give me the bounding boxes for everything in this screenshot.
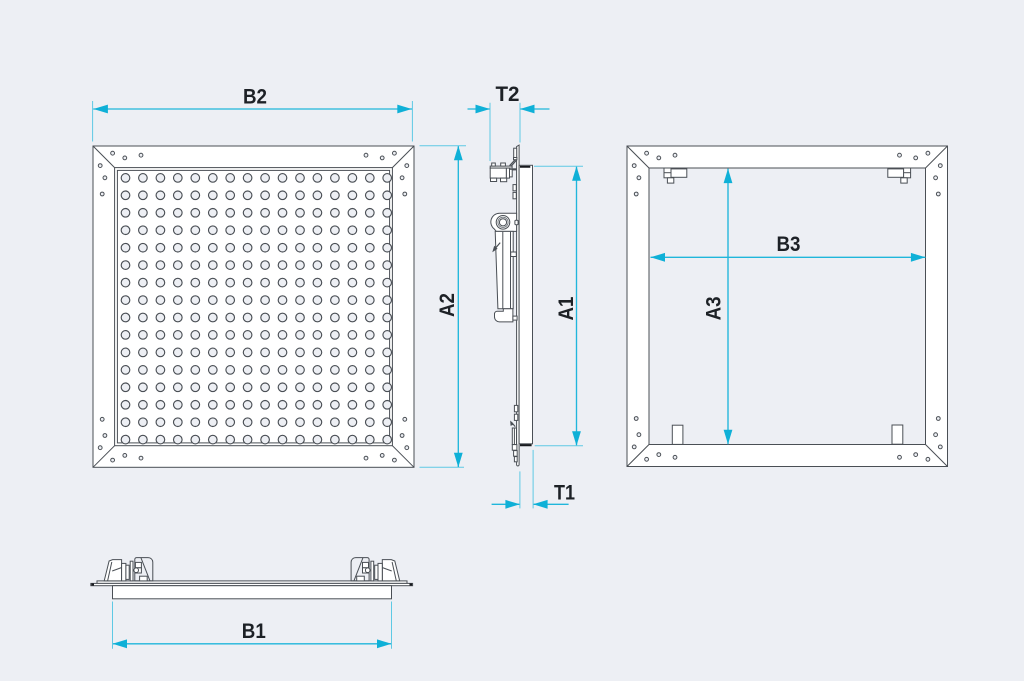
svg-text:A2: A2: [435, 293, 459, 317]
svg-text:B2: B2: [243, 84, 267, 108]
svg-text:T1: T1: [554, 481, 575, 505]
svg-text:B3: B3: [777, 232, 801, 256]
svg-text:T2: T2: [496, 82, 520, 106]
svg-text:A3: A3: [702, 296, 726, 320]
svg-text:A1: A1: [554, 296, 578, 320]
svg-text:B1: B1: [242, 619, 266, 643]
